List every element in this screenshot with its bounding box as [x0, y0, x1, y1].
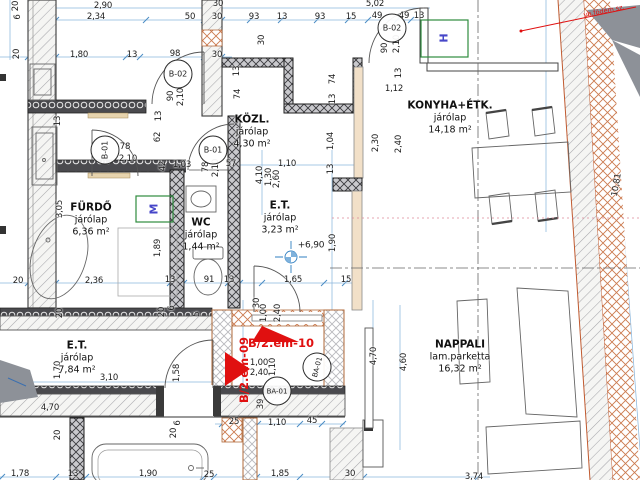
room-name: KÖZL. [233, 114, 270, 127]
dimension-label: 1,12 [385, 85, 403, 94]
dimension-label: 1,89 [154, 239, 163, 257]
dimension-label: 1,85 [271, 470, 289, 479]
dimension-label: 62 [154, 132, 163, 142]
room-name: FÜRDŐ [70, 202, 111, 215]
dimension-label: 6 [14, 14, 23, 19]
room-label-nappali: NAPPALIlam.parketta16,32 m² [430, 339, 491, 376]
dimension-label: 1,03 [173, 161, 191, 170]
dimension-label: 1,10 [268, 419, 286, 428]
door-tag-ba-01: BA-01 [263, 377, 292, 406]
room-name: KONYHA+ÉTK. [407, 100, 492, 113]
dimension-label: 2,34 [87, 13, 105, 22]
room-label-et-upper: E.T.járólap3,23 m² [261, 200, 298, 237]
dimension-label: 20 [13, 277, 23, 286]
dimension-label: 2,10 [393, 35, 402, 53]
dimension-label: 30 [212, 51, 222, 60]
room-label-wc: WCjárólap1,44 m² [182, 217, 219, 254]
dimension-label: 13 [127, 51, 137, 60]
window-tag-m: M [148, 204, 161, 215]
dimension-label: 6 [174, 420, 183, 425]
dimension-label: 1,00 [250, 359, 268, 368]
room-label-konyha: KONYHA+ÉTK.járólap14,18 m² [407, 100, 492, 137]
dimension-label: 13 [277, 13, 287, 22]
dimension-label: 2,10 [177, 88, 186, 106]
annotation-layer: 2,90305,022,34503093139315494913206201,8… [0, 0, 640, 480]
dimension-label: 1,30 [265, 168, 274, 186]
door-tag-b-02: B-02 [164, 60, 193, 89]
dimension-label: 39 [257, 399, 266, 409]
dimension-label: 3,74 [465, 473, 483, 480]
dimension-label: 30 [253, 298, 262, 308]
dimension-label: 20 [54, 430, 63, 440]
floor-plan: 2,90305,022,34503093139315494913206201,8… [0, 0, 640, 480]
dimension-label: 13 [68, 470, 78, 479]
door-tag-b-01: B-01 [91, 136, 120, 165]
dimension-label: 13 [327, 164, 336, 174]
dimension-label: 30 [258, 35, 267, 45]
dimension-label: 4,70 [370, 347, 379, 365]
red-annotation: B/2.em-09 [237, 337, 251, 403]
dimension-label: 2,10 [212, 159, 221, 177]
dimension-label: 13 [224, 276, 234, 285]
room-area: 4,30 m² [233, 139, 270, 151]
dimension-label: 74 [234, 89, 243, 99]
dimension-label: 20 [170, 428, 179, 438]
room-area: 3,23 m² [261, 225, 298, 237]
dimension-label: 1,90 [329, 234, 338, 252]
room-finish: járólap [261, 213, 298, 225]
dimension-label: 2,40 [250, 369, 268, 378]
dimension-label: 49 [372, 12, 382, 21]
dimension-label: 3,05 [56, 200, 65, 218]
dimension-label: 13 [414, 12, 424, 21]
dimension-label: 1,90 [139, 470, 157, 479]
dimension-label: 91 [204, 276, 214, 285]
dimension-label: 13 [395, 68, 404, 78]
dimension-label: 1,70 [54, 361, 63, 379]
dimension-label: 78 [120, 143, 130, 152]
room-finish: járólap [70, 215, 111, 227]
dimension-label: 30 [345, 470, 355, 479]
dimension-label: 90 [381, 43, 390, 53]
dimension-label: 13 [329, 94, 338, 104]
dimension-label: 13 [155, 111, 164, 121]
door-tag-b-02: B-02 [378, 14, 407, 43]
room-finish: járólap [407, 113, 492, 125]
dimension-label: 13 [165, 276, 175, 285]
dimension-label: 57 [226, 160, 236, 169]
dimension-label: 25 [229, 418, 239, 427]
dimension-label: 13 [233, 66, 242, 76]
room-area: 16,32 m² [430, 364, 491, 376]
room-name: WC [182, 217, 219, 230]
dimension-label: 1,58 [173, 364, 182, 382]
dimension-label: 2,10 [119, 155, 137, 164]
dimension-label: 78 [202, 162, 211, 172]
dimension-label: 2,30 [372, 134, 381, 152]
dimension-label: 3,10 [100, 374, 118, 383]
dimension-label: 4,60 [400, 353, 409, 371]
dimension-label: 4,70 [41, 404, 59, 413]
red-annotation: vb.födém sz. [583, 3, 625, 19]
dimension-label: 2,36 [85, 277, 103, 286]
room-name: E.T. [58, 340, 95, 353]
dimension-label: 1,10 [278, 160, 296, 169]
dimension-label: 1,00 [260, 304, 269, 322]
dimension-label: 6 [168, 305, 177, 310]
room-finish: lam.parketta [430, 352, 491, 364]
dimension-label: 49 [399, 12, 409, 21]
dimension-label: 2,90 [94, 2, 112, 11]
dimension-label: 1,10 [269, 358, 278, 376]
dimension-label: 45 [307, 417, 317, 426]
room-area: 14,18 m² [407, 125, 492, 137]
room-finish: járólap [182, 230, 219, 242]
door-tag-b-01: B-01 [199, 136, 228, 165]
dimension-label: 30 [213, 0, 223, 8]
dimension-label: 15 [341, 276, 351, 285]
dimension-label: 5,02 [366, 0, 384, 8]
room-label-kozl: KÖZL.járólap4,30 m² [233, 114, 270, 151]
dimension-label: 50 [185, 13, 195, 22]
dimension-label: 25 [204, 471, 214, 480]
door-tag-ba-01: BA-01 [299, 349, 335, 385]
dimension-label: 5 [193, 311, 202, 316]
dimension-label: 42 [159, 161, 168, 171]
dimension-label: 2,40 [395, 135, 404, 153]
dimension-label: 4,10 [256, 166, 265, 184]
dimension-label: 20 [12, 1, 21, 11]
room-finish: járólap [58, 353, 95, 365]
dimension-label: 30 [212, 13, 222, 22]
dimension-label: 1,78 [11, 470, 29, 479]
room-name: E.T. [261, 200, 298, 213]
dimension-label: 10,81 [611, 173, 623, 197]
dimension-label: 20 [56, 308, 65, 318]
dimension-label: 98 [170, 50, 180, 59]
dimension-label: 93 [249, 13, 259, 22]
dimension-label: 20 [13, 49, 22, 59]
room-area: 7,84 m² [58, 365, 95, 377]
dimension-label: 2,60 [273, 170, 282, 188]
room-label-furdo: FÜRDŐjárólap6,36 m² [70, 202, 111, 239]
level-marker-label: +6,90 [298, 242, 325, 251]
room-name: NAPPALI [430, 339, 491, 352]
dimension-label: 13 [54, 116, 63, 126]
room-area: 6,36 m² [70, 227, 111, 239]
window-tag-h: H [438, 33, 451, 42]
dimension-label: 15 [346, 13, 356, 22]
dimension-label: 1,65 [284, 276, 302, 285]
dimension-label: 1,04 [327, 132, 336, 150]
dimension-label: 74 [329, 74, 338, 84]
room-area: 1,44 m² [182, 242, 219, 254]
dimension-label: 90 [167, 91, 176, 101]
red-annotation: B/2.em-10 [248, 336, 314, 350]
dimension-label: 20 [158, 307, 167, 317]
dimension-label: 93 [315, 13, 325, 22]
dimension-label: 2,40 [274, 304, 283, 322]
room-finish: járólap [233, 127, 270, 139]
room-label-et-lower: E.T.járólap7,84 m² [58, 340, 95, 377]
dimension-label: 1,80 [70, 51, 88, 60]
